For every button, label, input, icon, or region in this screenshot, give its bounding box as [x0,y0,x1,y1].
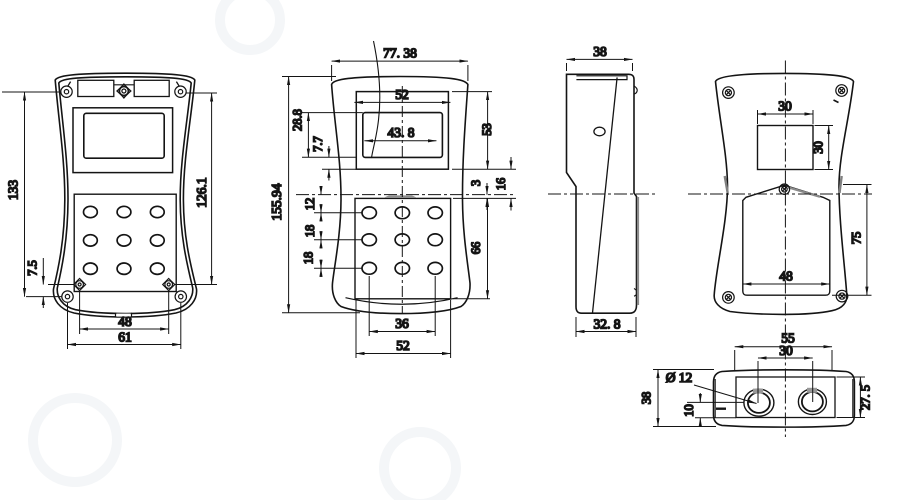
svg-text:7.7: 7.7 [311,136,325,152]
svg-text:36: 36 [395,316,409,331]
svg-text:18: 18 [303,225,317,238]
svg-text:Ø 12: Ø 12 [666,370,693,385]
svg-text:3: 3 [469,180,483,186]
svg-text:30: 30 [779,343,793,358]
svg-text:28.8: 28.8 [291,109,305,131]
svg-text:10: 10 [682,404,696,417]
svg-text:77. 38: 77. 38 [383,46,417,61]
svg-text:53: 53 [480,123,494,136]
svg-text:75: 75 [850,232,864,245]
svg-text:48: 48 [118,314,132,329]
svg-text:66: 66 [469,242,483,255]
svg-text:38: 38 [593,44,607,59]
svg-text:61: 61 [118,330,132,345]
svg-text:32. 8: 32. 8 [594,317,621,332]
svg-text:155.94: 155.94 [269,183,284,220]
svg-text:133: 133 [6,180,21,201]
svg-text:27. 5: 27. 5 [859,385,873,410]
svg-text:12: 12 [303,198,317,211]
svg-text:16: 16 [494,178,508,191]
svg-text:38: 38 [640,392,654,405]
svg-text:52: 52 [395,87,409,102]
svg-text:48: 48 [779,269,793,284]
svg-text:7.5: 7.5 [26,260,40,276]
svg-text:43. 8: 43. 8 [388,125,415,140]
svg-text:18: 18 [302,252,316,265]
svg-text:30: 30 [778,99,792,114]
svg-text:30: 30 [812,141,826,154]
svg-text:52: 52 [396,338,410,353]
svg-text:126.1: 126.1 [194,177,209,207]
